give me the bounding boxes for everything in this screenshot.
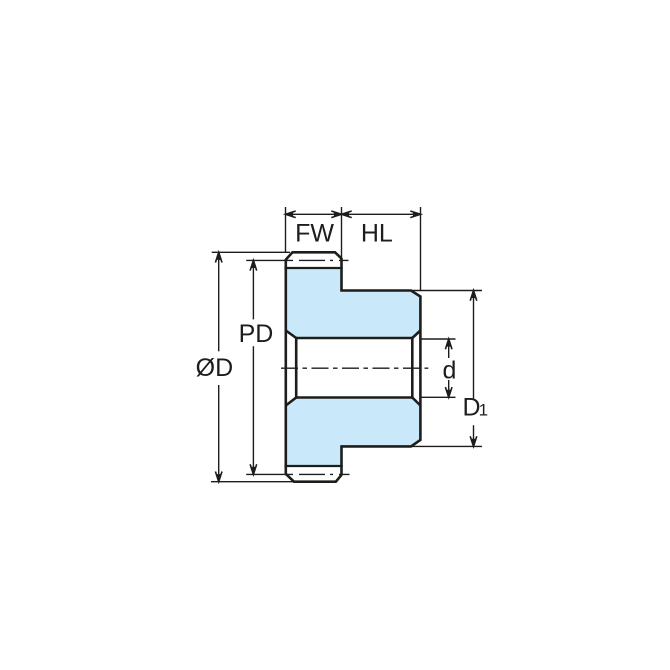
- svg-text:D1: D1: [463, 394, 489, 422]
- svg-text:ØD: ØD: [196, 354, 234, 382]
- svg-text:HL: HL: [361, 220, 393, 248]
- svg-text:FW: FW: [295, 220, 334, 248]
- svg-text:d: d: [443, 357, 457, 385]
- svg-text:PD: PD: [239, 320, 274, 348]
